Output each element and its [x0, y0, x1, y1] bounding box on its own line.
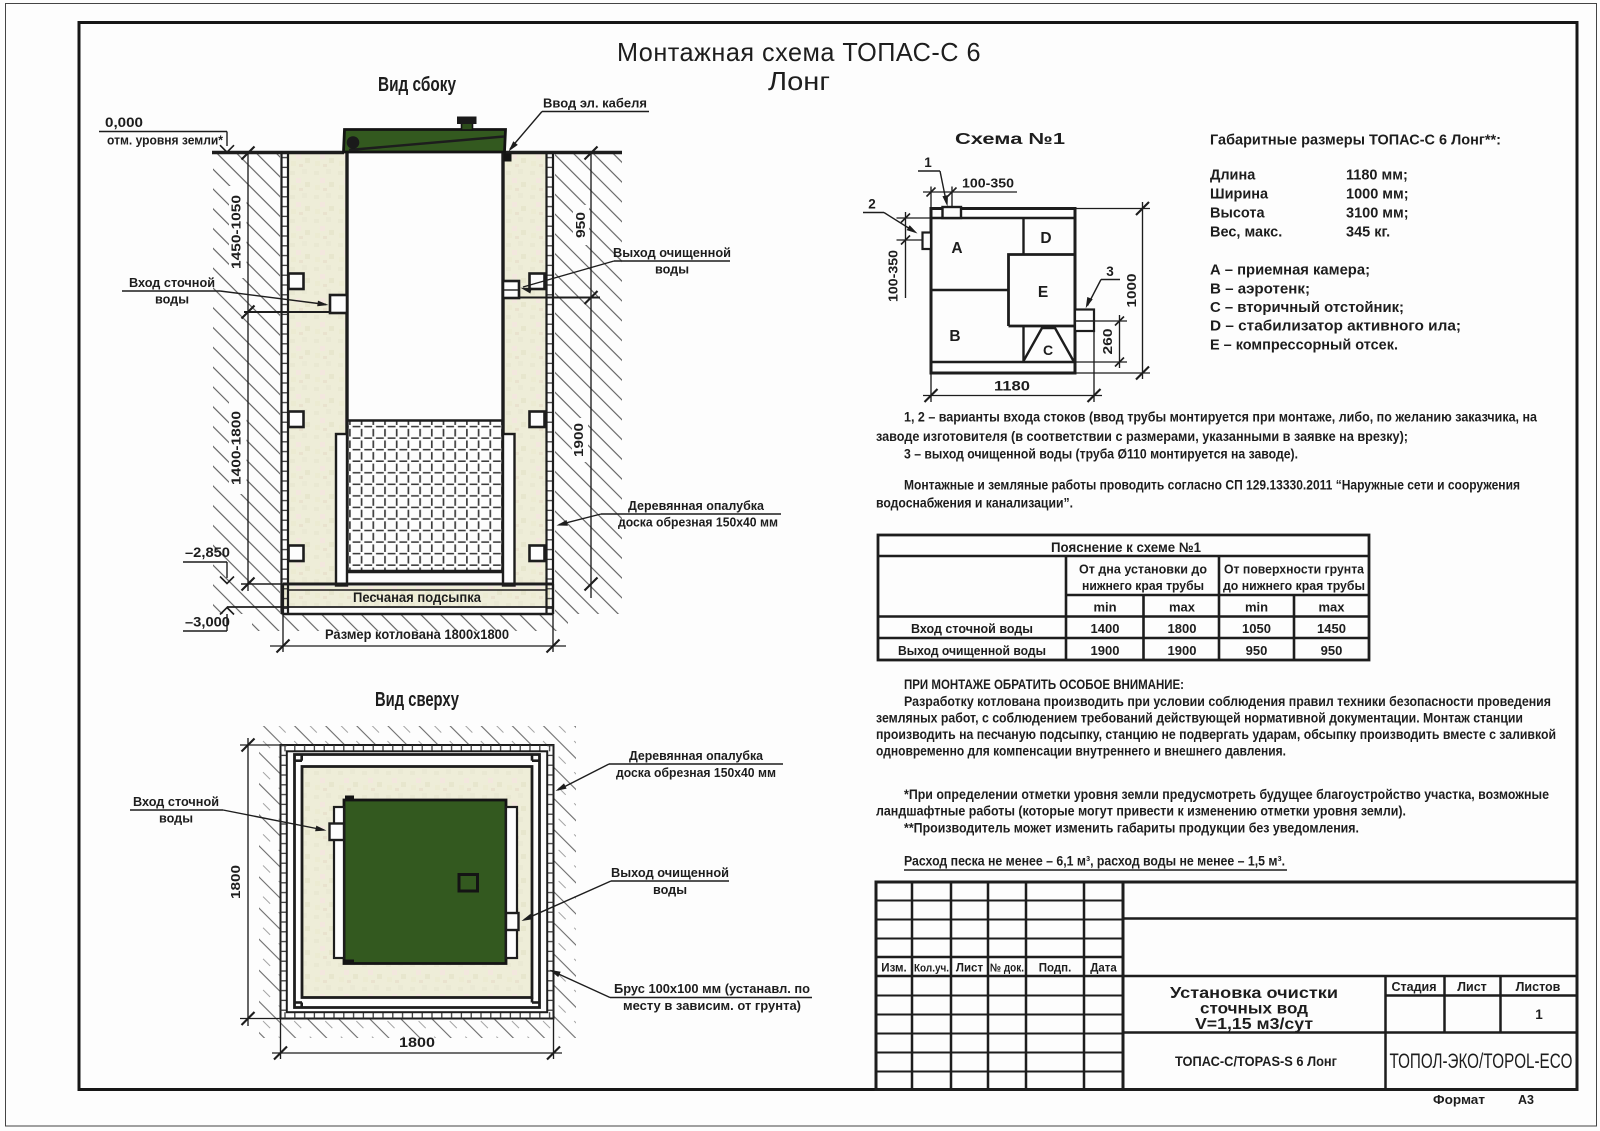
svg-text:1: 1 [1535, 1007, 1543, 1022]
svg-text:Лонг: Лонг [768, 66, 830, 96]
svg-text:3100 мм;: 3100 мм; [1346, 206, 1409, 222]
svg-text:0,000: 0,000 [105, 115, 143, 130]
svg-text:V=1,15 м3/сут: V=1,15 м3/сут [1195, 1016, 1313, 1033]
svg-text:–3,000: –3,000 [185, 615, 230, 630]
svg-text:Вид сверху: Вид сверху [375, 689, 460, 711]
svg-text:А3: А3 [1518, 1093, 1534, 1107]
svg-text:Песчаная подсыпка: Песчаная подсыпка [353, 590, 481, 605]
svg-text:260: 260 [1101, 328, 1115, 354]
svg-text:Монтажные и земляные работы пр: Монтажные и земляные работы проводить со… [904, 478, 1520, 493]
svg-text:Лист: Лист [956, 963, 984, 975]
svg-text:От поверхности грунта: От поверхности грунта [1224, 563, 1365, 577]
svg-text:Разработку котлована производи: Разработку котлована производить при усл… [904, 694, 1551, 709]
svg-text:A: A [951, 240, 962, 257]
svg-text:D: D [1040, 230, 1051, 247]
svg-text:Лист: Лист [1457, 980, 1487, 994]
svg-text:Выход очищенной: Выход очищенной [611, 865, 729, 880]
svg-text:доска обрезная 150х40 мм: доска обрезная 150х40 мм [618, 515, 778, 530]
svg-text:ТОПОЛ-ЭКО/TOPOL-ECO: ТОПОЛ-ЭКО/TOPOL-ECO [1390, 1050, 1573, 1073]
svg-text:заводе изготовителя (в соответ: заводе изготовителя (в соответствии с ра… [876, 429, 1408, 444]
svg-text:Изм.: Изм. [881, 963, 906, 975]
svg-text:А – приемная камера;: А – приемная камера; [1210, 263, 1370, 279]
svg-text:От дна установки до: От дна установки до [1079, 563, 1207, 577]
svg-text:Выход очищенной: Выход очищенной [613, 245, 731, 260]
svg-text:сточных вод: сточных вод [1200, 1001, 1308, 1018]
svg-text:Подп.: Подп. [1039, 963, 1072, 975]
svg-text:месту в зависим. от грунта): месту в зависим. от грунта) [623, 998, 801, 1013]
svg-text:1900: 1900 [1091, 643, 1120, 658]
svg-text:Монтажная схема ТОПАС-С 6: Монтажная схема ТОПАС-С 6 [617, 37, 981, 67]
svg-text:ТОПАС-С/TOPAS-S 6 Лонг: ТОПАС-С/TOPAS-S 6 Лонг [1175, 1053, 1337, 1069]
svg-text:Стадия: Стадия [1391, 980, 1436, 994]
svg-text:В – аэротенк;: В – аэротенк; [1210, 282, 1310, 298]
svg-text:max: max [1318, 600, 1345, 615]
svg-text:производить на песчаную подсып: производить на песчаную подсыпку, станци… [876, 727, 1556, 742]
svg-text:100-350: 100-350 [887, 250, 901, 302]
svg-text:1: 1 [924, 155, 932, 170]
svg-text:1800: 1800 [1168, 621, 1197, 636]
svg-text:Кол.уч.: Кол.уч. [914, 963, 949, 975]
svg-text:950: 950 [1246, 643, 1268, 658]
svg-text:1400-1800: 1400-1800 [229, 411, 244, 485]
svg-text:1800: 1800 [399, 1035, 435, 1050]
svg-text:1450-1050: 1450-1050 [229, 195, 244, 269]
svg-text:**Производитель может изменить: **Производитель может изменить габариты … [904, 821, 1359, 836]
svg-text:100-350: 100-350 [962, 177, 1014, 191]
svg-text:ПРИ МОНТАЖЕ ОБРАТИТЬ ОСОБОЕ ВН: ПРИ МОНТАЖЕ ОБРАТИТЬ ОСОБОЕ ВНИМАНИЕ: [904, 677, 1184, 692]
svg-text:Вход сточной: Вход сточной [129, 275, 215, 290]
svg-text:3: 3 [1106, 264, 1114, 279]
svg-text:C: C [1043, 342, 1053, 358]
svg-text:Схема №1: Схема №1 [955, 131, 1065, 148]
svg-text:Е – компрессорный отсек.: Е – компрессорный отсек. [1210, 338, 1398, 354]
svg-text:950: 950 [1321, 643, 1343, 658]
svg-text:Размер котлована 1800х1800: Размер котлована 1800х1800 [325, 627, 509, 642]
svg-text:воды: воды [155, 292, 189, 307]
svg-text:2: 2 [868, 197, 876, 212]
svg-text:Выход очищенной воды: Выход очищенной воды [898, 643, 1046, 658]
svg-text:min: min [1093, 600, 1116, 615]
svg-text:E: E [1038, 284, 1048, 301]
svg-text:1900: 1900 [1168, 643, 1197, 658]
svg-text:345 кг.: 345 кг. [1346, 225, 1390, 241]
svg-text:Листов: Листов [1516, 980, 1561, 994]
svg-text:*При определении отметки уровн: *При определении отметки уровня земли пр… [904, 787, 1549, 802]
svg-text:3 – выход очищенной воды (труб: 3 – выход очищенной воды (труба Ø110 мон… [904, 447, 1298, 462]
svg-text:ландшафтные работы (которые мо: ландшафтные работы (которые могут привес… [876, 804, 1406, 819]
svg-text:одновременно для компенсации в: одновременно для компенсации внутреннего… [876, 744, 1286, 759]
svg-text:1800: 1800 [228, 865, 243, 899]
svg-text:1400: 1400 [1091, 621, 1120, 636]
svg-text:Вид сбоку: Вид сбоку [378, 74, 457, 96]
svg-text:D – стабилизатор активного ила: D – стабилизатор активного ила; [1210, 319, 1461, 335]
svg-text:B: B [949, 328, 960, 345]
svg-text:min: min [1245, 600, 1268, 615]
svg-text:Расход песка не менее – 6,1 м³: Расход песка не менее – 6,1 м³, расход в… [904, 854, 1285, 869]
svg-text:воды: воды [653, 882, 687, 897]
svg-text:нижнего края трубы: нижнего края трубы [1082, 579, 1204, 593]
svg-text:1000: 1000 [1125, 273, 1139, 307]
svg-text:1, 2 – варианты входа стоков: 1, 2 – варианты входа стоков (ввод трубы… [904, 410, 1537, 425]
svg-text:1050: 1050 [1242, 621, 1271, 636]
svg-text:max: max [1169, 600, 1196, 615]
svg-text:–2,850: –2,850 [185, 545, 230, 560]
svg-text:Формат: Формат [1433, 1093, 1485, 1107]
svg-text:отм. уровня земли*: отм. уровня земли* [107, 133, 224, 148]
svg-text:Длина: Длина [1210, 168, 1256, 184]
svg-text:воды: воды [159, 811, 193, 826]
svg-text:1450: 1450 [1317, 621, 1346, 636]
svg-text:Ввод эл. кабеля: Ввод эл. кабеля [543, 96, 647, 111]
svg-text:Деревянная опалубка: Деревянная опалубка [629, 748, 764, 763]
svg-text:Деревянная опалубка: Деревянная опалубка [628, 498, 765, 513]
svg-text:Ширина: Ширина [1210, 187, 1269, 203]
svg-text:Габаритные размеры ТОПАС-С 6 Л: Габаритные размеры ТОПАС-С 6 Лонг**: [1210, 132, 1501, 149]
svg-text:1180: 1180 [994, 379, 1030, 394]
svg-text:Дата: Дата [1090, 963, 1117, 975]
svg-text:воды: воды [655, 262, 689, 277]
svg-text:1000 мм;: 1000 мм; [1346, 187, 1409, 203]
svg-text:С – вторичный отстойник;: С – вторичный отстойник; [1210, 300, 1404, 316]
svg-text:№ док.: № док. [990, 963, 1024, 975]
svg-text:Брус 100х100 мм (устанавл. по: Брус 100х100 мм (устанавл. по [614, 981, 810, 996]
svg-text:земляных работ, с соблюдением: земляных работ, с соблюдением требований… [876, 711, 1523, 726]
svg-text:Пояснение к схеме №1: Пояснение к схеме №1 [1051, 540, 1201, 555]
svg-text:Вход сточной воды: Вход сточной воды [911, 621, 1033, 636]
svg-text:Вход сточной: Вход сточной [133, 794, 219, 809]
svg-text:Вес, макс.: Вес, макс. [1210, 225, 1282, 241]
svg-text:до нижнего края трубы: до нижнего края трубы [1223, 579, 1365, 593]
svg-text:1180 мм;: 1180 мм; [1346, 168, 1408, 184]
svg-text:950: 950 [573, 212, 588, 238]
svg-text:Установка очистки: Установка очистки [1170, 985, 1338, 1002]
svg-text:1900: 1900 [571, 423, 586, 457]
svg-text:водоснабжения и канализации”.: водоснабжения и канализации”. [876, 496, 1073, 511]
svg-text:Высота: Высота [1210, 206, 1266, 222]
svg-text:доска обрезная 150х40 мм: доска обрезная 150х40 мм [616, 765, 776, 780]
